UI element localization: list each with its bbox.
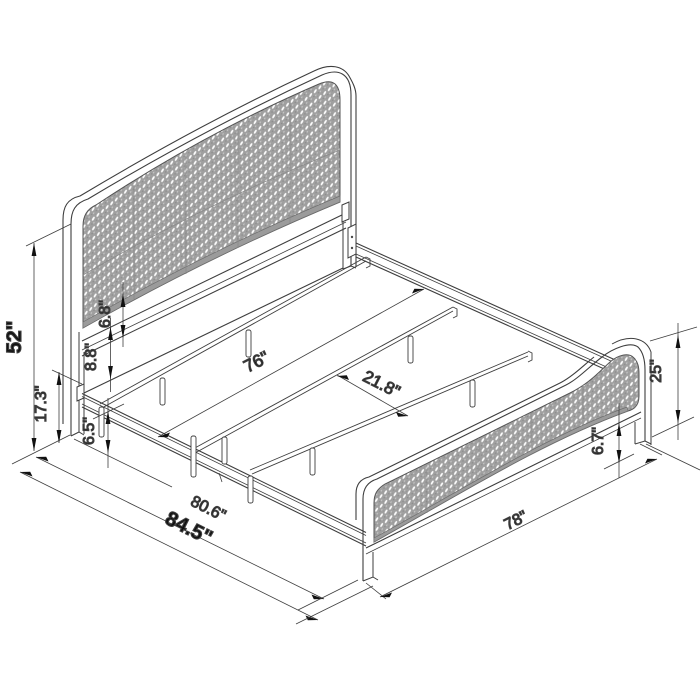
svg-text:52": 52" xyxy=(3,320,26,353)
svg-text:8.8": 8.8" xyxy=(83,343,100,371)
svg-text:17.3": 17.3" xyxy=(33,386,50,423)
svg-text:6.5": 6.5" xyxy=(81,417,98,445)
svg-text:25": 25" xyxy=(648,359,665,382)
svg-text:6.8": 6.8" xyxy=(97,300,114,328)
svg-text:6.7": 6.7" xyxy=(590,427,607,455)
